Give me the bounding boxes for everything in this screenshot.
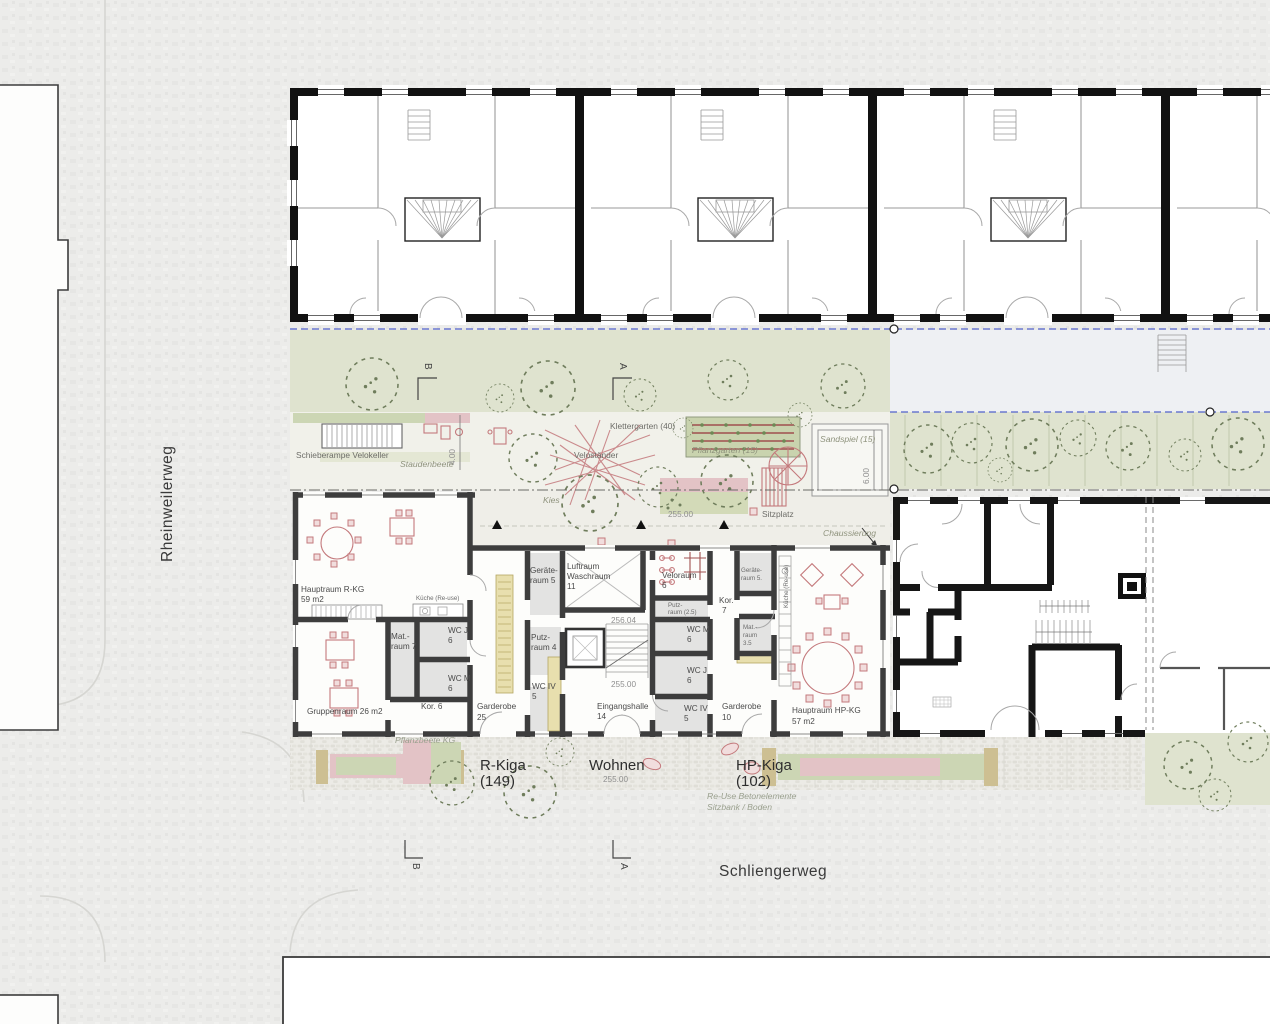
site-plan: Rheinweilerweg Schliengerweg Schieberamp… [0, 0, 1270, 1024]
section-a-top: A [617, 363, 628, 370]
label-klettergarten: Klettergarten (40) [610, 421, 675, 431]
entry-rkiga-2: (149) [480, 773, 515, 790]
room-mat-r1: Mat.- [743, 624, 757, 631]
street-label-rheinweilerweg: Rheinweilerweg [159, 446, 176, 562]
dim-sand: 6.00 [862, 468, 871, 484]
plan-canvas: Rheinweilerweg Schliengerweg Schieberamp… [0, 0, 1270, 1024]
entry-hpkiga-1: HP-Kiga [736, 757, 793, 774]
pergola [762, 468, 786, 506]
room-kueche-rkg: Küche (Re-use) [416, 595, 459, 602]
play-wheel [769, 447, 807, 485]
room-wcm-r1: WC M [687, 625, 710, 634]
room-wcm-r2: 6 [687, 635, 692, 644]
entry-wohnen: Wohnen [589, 757, 645, 774]
label-sandspiel: Sandspiel (15) [820, 434, 876, 444]
room-kueche-hp: Küche (Re-use) [783, 565, 790, 608]
room-wcj-r2: 6 [687, 676, 692, 685]
section-b-bottom: B [410, 863, 421, 870]
room-wciv-l1: WC IV [532, 682, 556, 691]
label-kies: Kies [543, 495, 560, 505]
room-mat-r3: 3.5 [743, 640, 752, 647]
room-luftraum-2: Waschraum [567, 572, 611, 581]
room-garderobe10-2: 10 [722, 713, 732, 722]
room-putz4-2: raum 4 [531, 643, 557, 652]
room-garderobe10-1: Garderobe [722, 702, 762, 711]
note-reuse-2: Sitzbank / Boden [707, 802, 772, 812]
section-b-top: B [422, 363, 433, 370]
label-velostaender: Veloständer [574, 450, 618, 460]
room-wcj-r1: WC J [687, 666, 707, 675]
room-putz4-1: Putz- [531, 633, 550, 642]
room-hauptraum-rkg-area: 59 m2 [301, 595, 324, 604]
room-garderobe25-1: Garderobe [477, 702, 517, 711]
room-eingangshalle-1: Eingangshalle [597, 702, 649, 711]
room-wciv-r1: WC IV [684, 704, 708, 713]
entry-wohnen-level: 255.00 [603, 775, 628, 784]
room-wcj-l2: 6 [448, 636, 453, 645]
room-kor6: Kor. 6 [421, 702, 443, 711]
room-kor7-2: 7 [722, 606, 727, 615]
label-schieberampe: Schieberampe Velokeller [296, 450, 389, 460]
label-level-hall: 255.00 [611, 680, 636, 689]
room-wciv-r2: 5 [684, 714, 689, 723]
label-pflanzbeete: Pflanzbeete KG [395, 735, 456, 745]
room-hauptraum-hp-area: 57 m2 [792, 717, 815, 726]
room-wcm-l1: WC M [448, 674, 471, 683]
entry-rkiga-1: R-Kiga [480, 757, 527, 774]
south-building-outline [283, 957, 1270, 1024]
label-sitzplatz: Sitzplatz [762, 509, 794, 519]
left-facade-windows [287, 120, 301, 266]
room-hauptraum-rkg: Hauptraum R-KG [301, 585, 364, 594]
column-detail [1118, 573, 1146, 599]
label-level-upper: 256.04 [611, 616, 636, 625]
dim-ramp: 4.00 [448, 449, 457, 465]
room-geraete-r2: raum 5. [741, 575, 762, 582]
label-staudenbeete: Staudenbeete [400, 459, 454, 469]
room-luftraum-3: 11 [567, 582, 576, 591]
room-putz25-1: Putz- [668, 602, 682, 609]
entry-hpkiga-2: (102) [736, 773, 771, 790]
wohnen-building [893, 497, 1270, 737]
room-garderobe25-2: 25 [477, 713, 487, 722]
room-gruppenraum: Gruppenraum 26 m2 [307, 707, 383, 716]
velo-ramp [322, 424, 402, 448]
room-wcm-l2: 6 [448, 684, 453, 693]
room-mat-r2: raum [743, 632, 757, 639]
elevator-icon [566, 629, 604, 667]
section-a-bottom: A [618, 863, 629, 870]
label-chaussierung: Chaussierung [823, 528, 876, 538]
note-reuse-1: Re-Use Betonelemente [707, 791, 797, 801]
room-wcj-l1: WC J [448, 626, 468, 635]
room-veloraum-2: 6 [662, 581, 667, 590]
room-putz25-2: raum (2.5) [668, 609, 697, 616]
room-veloraum-1: Veloraum [662, 571, 697, 580]
room-geraete-r1: Geräte- [741, 567, 762, 574]
room-geraete-l1: Geräte- [530, 566, 558, 575]
street-label-schliengerweg: Schliengerweg [719, 863, 827, 880]
planting-bed-right [1145, 733, 1270, 805]
room-wciv-l2: 5 [532, 692, 537, 701]
label-level-court: 255.00 [668, 510, 693, 519]
apartment-building [287, 85, 1270, 325]
garderobe-bench [496, 575, 513, 693]
room-kor7-1: Kor. [719, 596, 734, 605]
room-hauptraum-hp: Hauptraum HP-KG [792, 706, 861, 715]
room-geraete-l2: raum 5 [530, 576, 556, 585]
room-matraum-1: Mat.- [391, 632, 410, 641]
label-pflanzgarten: Pflanzgarten (15) [692, 445, 758, 455]
room-luftraum-1: Luftraum [567, 562, 599, 571]
room-eingangshalle-2: 14 [597, 712, 607, 721]
room-matraum-2: raum 7 [391, 642, 417, 651]
